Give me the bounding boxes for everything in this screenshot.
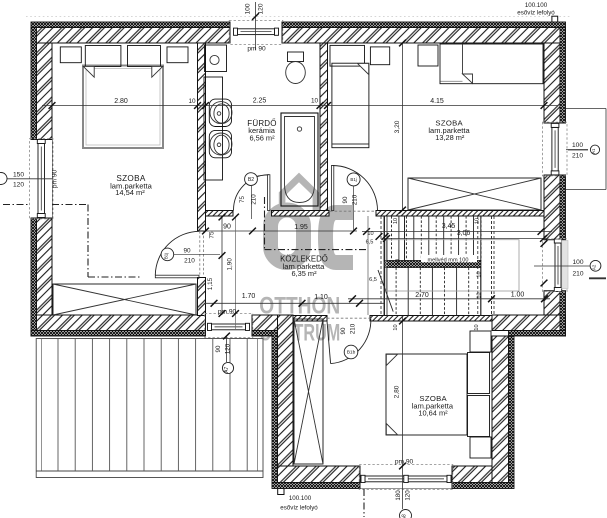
svg-text:A2: A2 bbox=[592, 264, 597, 270]
svg-text:90: 90 bbox=[223, 224, 231, 231]
svg-text:10: 10 bbox=[474, 324, 480, 330]
svg-text:2.70: 2.70 bbox=[415, 292, 429, 299]
svg-text:esővíz lefolyó: esővíz lefolyó bbox=[280, 505, 318, 512]
svg-text:120: 120 bbox=[405, 490, 412, 501]
svg-text:B1b: B1b bbox=[347, 350, 356, 356]
svg-text:2.25: 2.25 bbox=[253, 98, 267, 105]
svg-text:210: 210 bbox=[572, 153, 583, 160]
svg-text:120: 120 bbox=[258, 3, 265, 14]
svg-text:mellvéd mm 100: mellvéd mm 100 bbox=[427, 257, 468, 263]
svg-text:120: 120 bbox=[13, 182, 24, 189]
svg-text:10: 10 bbox=[393, 324, 399, 330]
svg-text:10: 10 bbox=[367, 231, 373, 237]
svg-text:10: 10 bbox=[188, 98, 196, 105]
svg-text:90: 90 bbox=[215, 345, 222, 352]
svg-text:4.15: 4.15 bbox=[430, 98, 444, 105]
svg-text:esővíz lefolyó: esővíz lefolyó bbox=[517, 10, 555, 17]
svg-text:A1: A1 bbox=[591, 148, 596, 154]
svg-text:pm 90: pm 90 bbox=[395, 459, 414, 466]
svg-text:A8: A8 bbox=[402, 514, 408, 518]
svg-text:90: 90 bbox=[342, 196, 349, 203]
svg-text:6,5: 6,5 bbox=[366, 240, 374, 246]
svg-text:210: 210 bbox=[350, 323, 357, 334]
svg-text:pm 90: pm 90 bbox=[247, 46, 266, 53]
svg-text:A7: A7 bbox=[224, 367, 230, 373]
svg-text:pm 90: pm 90 bbox=[218, 308, 237, 315]
svg-text:3,20: 3,20 bbox=[394, 120, 401, 133]
svg-text:210: 210 bbox=[251, 194, 258, 205]
svg-text:1,15: 1,15 bbox=[207, 277, 214, 290]
svg-text:1.95: 1.95 bbox=[294, 224, 308, 231]
svg-text:210: 210 bbox=[184, 257, 195, 264]
svg-text:2.80: 2.80 bbox=[114, 98, 128, 105]
svg-text:6,5: 6,5 bbox=[369, 277, 377, 283]
svg-text:2,80: 2,80 bbox=[394, 385, 401, 398]
svg-text:1.10: 1.10 bbox=[314, 294, 328, 301]
svg-text:10,64 m²: 10,64 m² bbox=[418, 409, 448, 418]
svg-text:B1j: B1j bbox=[350, 177, 356, 182]
svg-text:pm 90: pm 90 bbox=[52, 170, 59, 189]
svg-text:100.100: 100.100 bbox=[289, 495, 312, 502]
svg-text:210: 210 bbox=[352, 194, 359, 205]
svg-text:75: 75 bbox=[209, 231, 216, 239]
svg-text:3,45: 3,45 bbox=[442, 223, 456, 230]
svg-text:100: 100 bbox=[572, 142, 583, 149]
svg-text:14,54 m²: 14,54 m² bbox=[115, 188, 145, 197]
svg-text:100: 100 bbox=[245, 3, 252, 14]
svg-text:B1j: B1j bbox=[163, 253, 168, 259]
svg-text:10: 10 bbox=[395, 259, 401, 265]
svg-text:10: 10 bbox=[393, 218, 399, 224]
svg-text:100.100: 100.100 bbox=[525, 2, 548, 9]
svg-text:150: 150 bbox=[13, 172, 24, 179]
svg-text:90: 90 bbox=[340, 327, 347, 334]
svg-text:10: 10 bbox=[311, 98, 319, 105]
svg-text:10: 10 bbox=[477, 271, 483, 277]
svg-text:90: 90 bbox=[183, 248, 191, 255]
svg-text:180: 180 bbox=[395, 490, 402, 501]
svg-text:3,06: 3,06 bbox=[457, 230, 471, 237]
svg-text:B2: B2 bbox=[248, 177, 254, 183]
svg-text:6,56 m²: 6,56 m² bbox=[249, 133, 275, 142]
svg-text:13,28 m²: 13,28 m² bbox=[435, 133, 465, 142]
svg-text:120: 120 bbox=[225, 343, 232, 354]
svg-text:10: 10 bbox=[475, 218, 481, 224]
svg-text:1.00: 1.00 bbox=[511, 292, 525, 299]
svg-text:100: 100 bbox=[572, 259, 583, 266]
svg-text:210: 210 bbox=[572, 270, 583, 277]
svg-text:1,90: 1,90 bbox=[227, 258, 234, 271]
svg-text:1.70: 1.70 bbox=[242, 293, 256, 300]
svg-text:10: 10 bbox=[477, 292, 483, 298]
svg-text:6,35 m²: 6,35 m² bbox=[291, 269, 317, 278]
svg-text:75: 75 bbox=[239, 196, 246, 203]
